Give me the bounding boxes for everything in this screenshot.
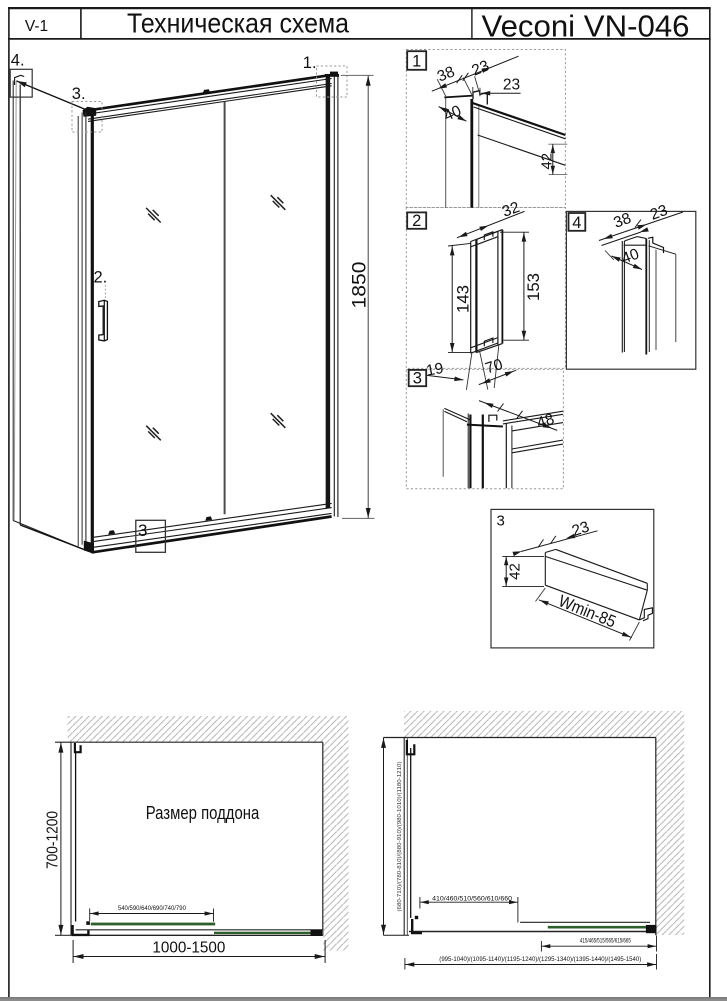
svg-text:153: 153 bbox=[524, 273, 543, 301]
svg-text:42: 42 bbox=[506, 563, 523, 580]
svg-text:Техническая схема: Техническая схема bbox=[127, 8, 350, 39]
svg-text:23: 23 bbox=[503, 76, 520, 93]
svg-text:1: 1 bbox=[412, 52, 421, 70]
svg-text:1850: 1850 bbox=[349, 261, 371, 308]
svg-text:42: 42 bbox=[539, 153, 556, 170]
svg-text:2.: 2. bbox=[94, 268, 108, 286]
svg-text:540/590/640/690/740/790: 540/590/640/690/740/790 bbox=[118, 905, 187, 912]
svg-text:4.: 4. bbox=[11, 52, 25, 70]
svg-text:1000-1500: 1000-1500 bbox=[152, 939, 225, 956]
svg-text:3: 3 bbox=[413, 369, 422, 387]
svg-text:410/460/510/560/610/660: 410/460/510/560/610/660 bbox=[432, 895, 513, 902]
svg-text:(680-710)/(780-810)/(880-910)/: (680-710)/(780-810)/(880-910)/(980-1010)… bbox=[397, 761, 403, 911]
svg-text:3.: 3. bbox=[72, 85, 86, 103]
svg-text:700-1200: 700-1200 bbox=[44, 811, 61, 869]
svg-text:Размер поддона: Размер поддона bbox=[146, 802, 260, 823]
svg-text:Veconi VN-046: Veconi VN-046 bbox=[482, 9, 690, 43]
svg-text:(995-1040)/(1095-1140)/(1195-1: (995-1040)/(1095-1140)/(1195-1240)/(1295… bbox=[439, 956, 641, 963]
svg-text:143: 143 bbox=[454, 285, 473, 313]
svg-text:415/465/515/565/615/665: 415/465/515/565/615/665 bbox=[580, 939, 631, 945]
svg-text:4: 4 bbox=[572, 214, 581, 232]
svg-text:3: 3 bbox=[497, 513, 505, 530]
svg-text:1.: 1. bbox=[303, 54, 317, 72]
svg-text:2: 2 bbox=[412, 212, 421, 230]
svg-text:V-1: V-1 bbox=[25, 18, 48, 35]
svg-text:3: 3 bbox=[138, 521, 147, 540]
